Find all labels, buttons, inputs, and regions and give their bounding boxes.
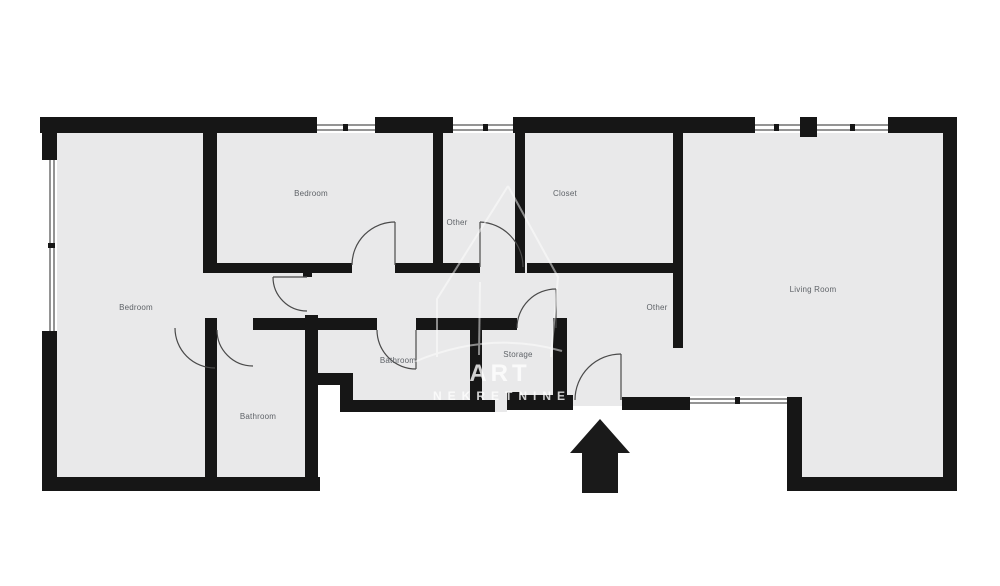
floor-plan: Bedroom Bedroom Closet Other Living Room…	[0, 0, 1000, 586]
entrance-arrow-icon	[570, 419, 630, 493]
floor-top-middle-block	[210, 125, 683, 272]
wall-segment	[943, 117, 957, 491]
window-mullion	[483, 124, 488, 131]
wall-segment	[42, 331, 57, 491]
window-mullion	[735, 397, 740, 404]
wall-segment	[375, 117, 453, 133]
floor-middle-block	[210, 268, 690, 406]
wall-segment	[673, 133, 683, 348]
room-label-living-room: Living Room	[790, 285, 837, 294]
room-label-bathroom-middle: Bathroom	[380, 356, 416, 365]
wall-segment	[787, 477, 957, 491]
room-label-bathroom-left: Bathroom	[240, 412, 276, 421]
wall-segment	[416, 318, 517, 330]
window-mullion	[343, 124, 348, 131]
watermark-line1: ART	[469, 360, 530, 387]
exterior-notch	[318, 385, 340, 500]
wall-segment	[42, 117, 57, 160]
wall-segment	[253, 318, 305, 330]
watermark-line2: NEKRETNINE	[433, 389, 571, 403]
room-label-bedroom-top: Bedroom	[294, 189, 328, 198]
wall-segment	[527, 263, 673, 273]
room-label-bedroom-left: Bedroom	[119, 303, 153, 312]
wall-segment	[40, 117, 317, 133]
floor-areas	[49, 125, 950, 484]
window-mullion	[850, 124, 855, 131]
room-label-hall-top: Other	[446, 218, 467, 227]
wall-segment	[787, 397, 802, 491]
window-mullion	[48, 243, 55, 248]
wall-segment	[340, 385, 353, 412]
room-label-hall-bottom: Other	[646, 303, 667, 312]
window-mullion	[774, 124, 779, 131]
room-label-storage: Storage	[503, 350, 533, 359]
wall-segment	[305, 315, 318, 477]
floor-plan-page: Bedroom Bedroom Closet Other Living Room…	[0, 0, 1000, 586]
wall-segment	[622, 397, 690, 410]
wall-segment	[203, 263, 352, 273]
wall-segment	[433, 133, 443, 273]
wall-segment	[203, 133, 217, 273]
wall-segment	[800, 117, 817, 137]
wall-segment	[513, 117, 755, 133]
wall-segment	[42, 477, 320, 491]
floor-living-room-lower	[800, 125, 948, 484]
wall-segment	[205, 318, 217, 477]
room-label-closet: Closet	[553, 189, 577, 198]
wall-segment	[312, 318, 377, 330]
